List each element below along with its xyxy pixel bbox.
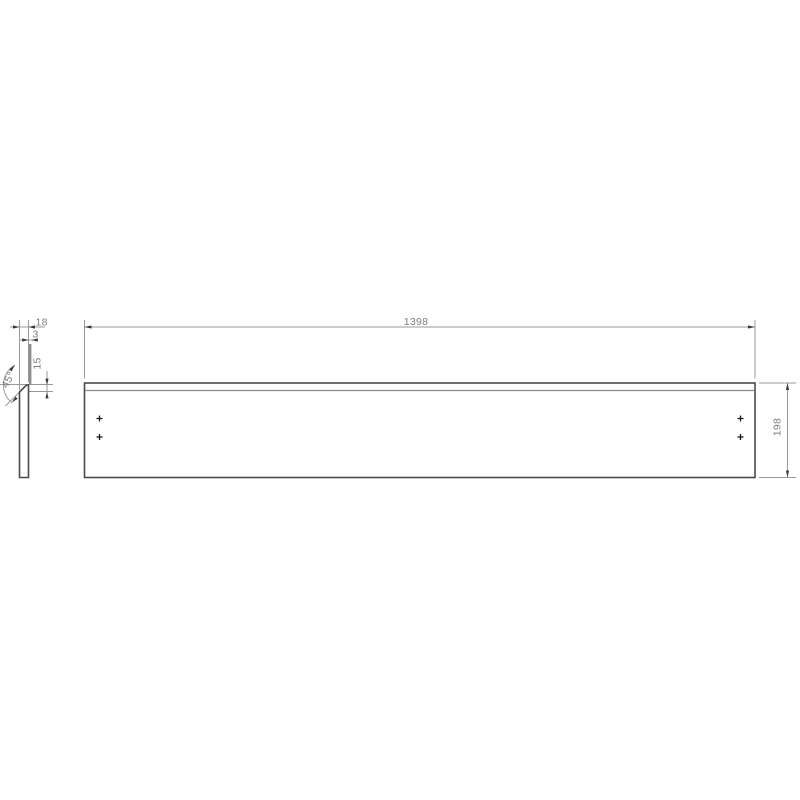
dimension-chamfer-height-15: 15 xyxy=(32,357,49,398)
panel-front-outline xyxy=(85,383,756,478)
side-view: 18 3 15 45° xyxy=(0,317,53,478)
dimension-height-198: 198 xyxy=(759,383,796,478)
dimension-label-length: 1398 xyxy=(404,316,429,328)
dimension-arrow xyxy=(22,338,28,341)
technical-drawing-page: 18 3 15 45° xyxy=(0,0,800,800)
panel-technical-drawing: 18 3 15 45° xyxy=(0,0,800,800)
dimension-length-1398: 1398 xyxy=(85,316,756,379)
dimension-arrow xyxy=(13,325,20,328)
panel-profile-outline xyxy=(20,385,29,478)
dimension-arrow xyxy=(85,325,92,328)
dimension-arrow xyxy=(45,392,48,398)
dimension-label-lip: 3 xyxy=(33,329,39,341)
dimension-label-chamfer-angle: 45° xyxy=(0,370,18,390)
dimension-arrow xyxy=(786,383,789,390)
dimension-arrow xyxy=(786,471,789,478)
dimension-label-chamfer-height: 15 xyxy=(32,357,44,369)
front-view: 1398 198 xyxy=(85,316,797,478)
dimension-label-thickness: 18 xyxy=(36,317,48,329)
dimension-label-height: 198 xyxy=(772,418,784,436)
dimension-lip-3: 3 xyxy=(20,329,39,342)
dimension-arrow xyxy=(748,325,755,328)
